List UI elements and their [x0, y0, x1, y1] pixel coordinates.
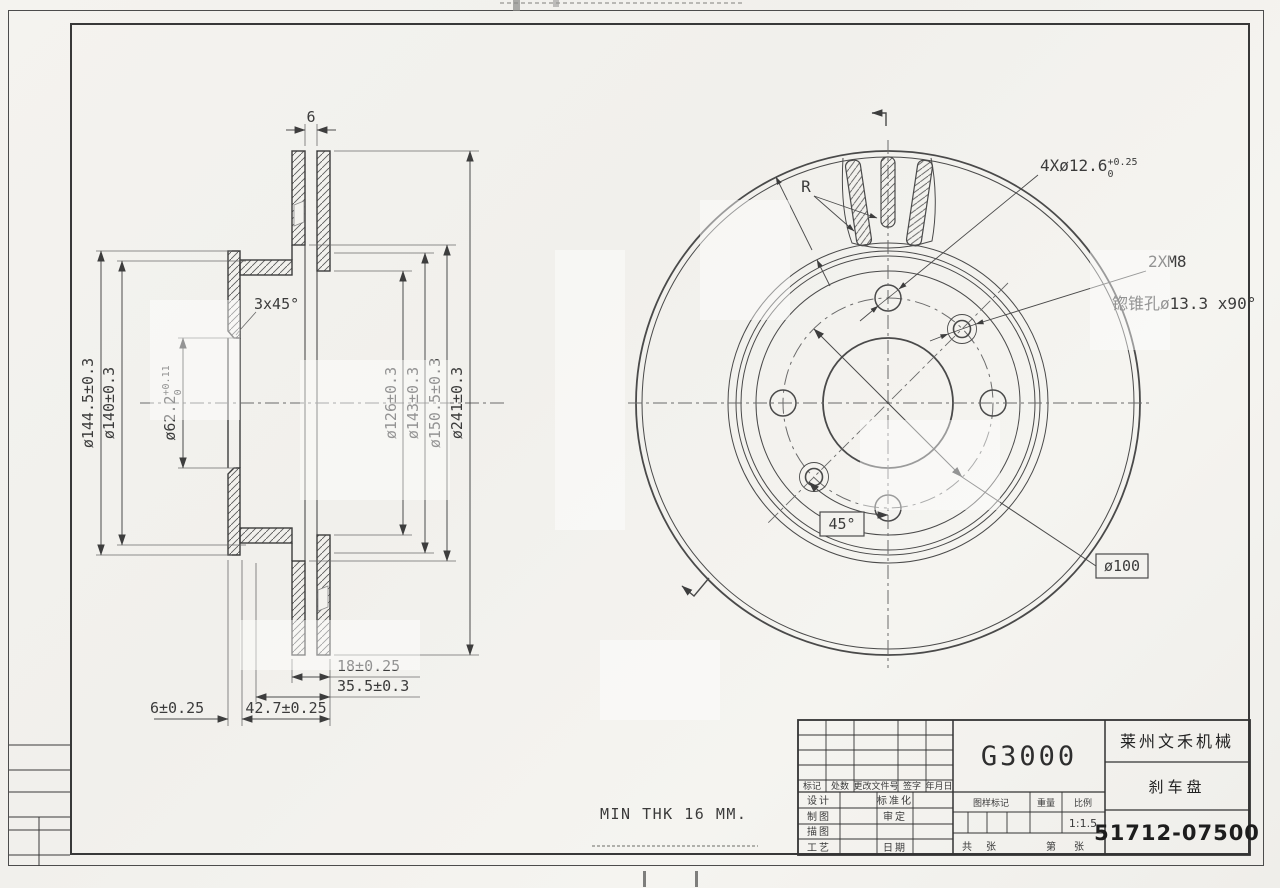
dim-vent-width: 6 [306, 108, 315, 126]
tb-col-count: 处数 [831, 780, 849, 792]
section-mark-bottom [682, 578, 709, 596]
dim-140: ø140±0.3 [100, 367, 118, 439]
tb-footer-total: 共 [962, 841, 974, 853]
engineering-drawing: 6 ø144.5±0.3 ø140±0.3 ø62.2+0.110 ø126±0… [0, 0, 1280, 888]
vent-slot-section [842, 157, 935, 248]
tb-footer-sheet: 张 [986, 841, 998, 853]
dim-355: 35.5±0.3 [337, 677, 409, 695]
tb-col-sign: 签字 [903, 780, 921, 792]
tb-row-process: 工艺 [807, 842, 831, 854]
tb-col-date: 年月日 [925, 780, 952, 792]
note-min-thickness: MIN THK 16 MM. [600, 805, 747, 823]
dim-chamfer: 3x45° [254, 295, 299, 313]
tb-lbl-weight: 重量 [1037, 797, 1055, 809]
tb-row-draft: 制图 [807, 810, 831, 823]
label-bolt-circle: ø100 [1104, 557, 1140, 575]
front-view-texts: 4Xø12.6+0.250 2XM8 锪锥孔ø13.3 x90° ø100 45… [801, 156, 1256, 575]
dim-241: ø241±0.3 [448, 367, 466, 439]
tb-scale-value: 1:1.5 [1069, 817, 1097, 830]
tb-row-approve: 审定 [883, 810, 907, 823]
label-angle: 45° [828, 515, 855, 533]
label-vane-radius: R [801, 177, 811, 196]
dim-427: 42.7±0.25 [245, 699, 326, 717]
dim-144: ø144.5±0.3 [79, 358, 97, 448]
tb-row-standard: 标准化 [877, 794, 913, 807]
tb-footer-sheet2: 张 [1074, 841, 1086, 853]
tb-lbl-scale: 比例 [1074, 797, 1092, 809]
margin-grid [9, 745, 70, 866]
tb-material: G3000 [981, 741, 1077, 772]
dim-6: 6±0.25 [150, 699, 204, 717]
tb-part-number: 51712-07500 [1094, 821, 1260, 845]
label-bolt-holes: 4Xø12.6+0.250 [1040, 156, 1138, 180]
section-mark-top [872, 113, 886, 126]
tb-row-design: 设计 [807, 794, 831, 807]
tb-part-name: 刹车盘 [1148, 778, 1205, 796]
tb-col-doc: 更改文件号 [853, 780, 898, 792]
tb-row-trace: 描图 [807, 825, 831, 838]
tb-company: 莱州文禾机械 [1120, 732, 1234, 751]
tb-col-mark: 标记 [803, 780, 821, 792]
tb-lbl-drawing-mark: 图样标记 [973, 797, 1009, 809]
front-view: 4Xø12.6+0.250 2XM8 锪锥孔ø13.3 x90° ø100 45… [628, 113, 1256, 668]
tb-row-date: 日期 [883, 842, 907, 854]
tb-footer-no: 第 [1046, 840, 1058, 853]
title-block: 标记 处数 更改文件号 签字 年月日 设计 标准化 制图 审定 描图 工艺 日期… [798, 720, 1260, 855]
